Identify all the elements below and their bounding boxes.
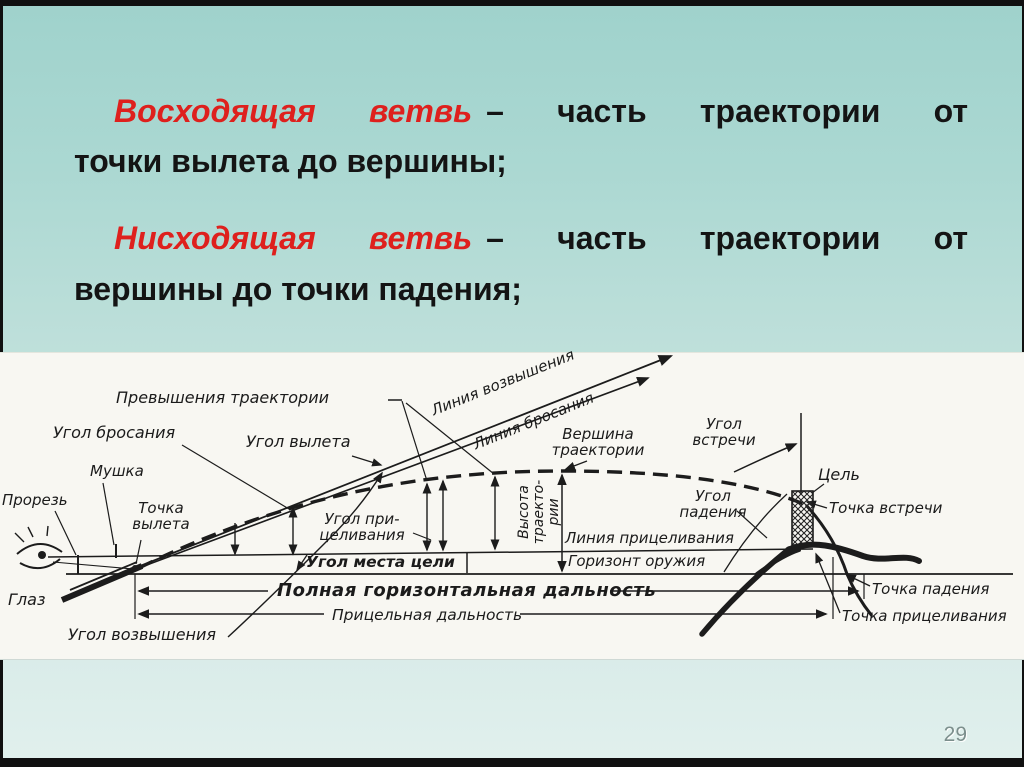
label-target-position-angle: Угол места цели: [306, 554, 455, 571]
label-throwing-angle: Угол бросания: [53, 424, 175, 441]
label-rear-sight-notch: Прорезь: [2, 492, 68, 508]
label-trajectory-apex: Вершина траектории: [540, 426, 656, 458]
presentation-slide: Восходящая ветвь– часть траектории от то…: [0, 0, 1024, 767]
label-trajectory-height: Высота траекто- рии: [517, 470, 562, 554]
label-elevation-angle: Угол возвышения: [68, 626, 216, 643]
label-aim-point: Точка прицеливания: [842, 608, 1007, 624]
definition-descending-rest: – часть траектории от: [486, 220, 968, 256]
definition-ascending: Восходящая ветвь– часть траектории от то…: [74, 86, 968, 186]
label-aiming-angle: Угол при- целивания: [311, 511, 413, 543]
slide-border-top: [0, 0, 1024, 6]
definition-ascending-line2: точки вылета до вершины;: [74, 136, 968, 186]
target-box: [792, 491, 813, 545]
sight-ray: [53, 562, 133, 569]
label-full-horizontal-range: Полная горизонтальная дальность: [277, 581, 656, 600]
label-target: Цель: [818, 466, 860, 483]
muzzle-point: [132, 565, 138, 571]
front-sight-leader: [103, 483, 114, 545]
term-ascending-branch: Восходящая ветвь: [114, 93, 472, 129]
slide-border-bottom: [0, 758, 1024, 767]
definition-descending: Нисходящая ветвь– часть траектории от ве…: [74, 213, 968, 313]
aiming-angle-leader: [413, 533, 431, 540]
label-departure-angle: Угол вылета: [246, 433, 351, 450]
weapon-barrel: [62, 566, 142, 600]
label-meeting-point: Точка встречи: [829, 500, 942, 516]
muzzle-point-leader: [136, 540, 141, 564]
definitions-block: Восходящая ветвь– часть траектории от то…: [74, 86, 968, 341]
definition-descending-line2: вершины до точки падения;: [74, 264, 968, 314]
label-superelevation: Превышения траектории: [116, 389, 329, 406]
label-meeting-angle: Угол встречи: [684, 416, 764, 448]
term-descending-branch: Нисходящая ветвь: [114, 220, 472, 256]
trajectory-tail: [806, 505, 872, 616]
departure-angle-leader: [352, 456, 381, 465]
label-muzzle-point: Точка вылета: [124, 500, 198, 532]
aim-point-leader: [816, 554, 840, 613]
label-front-sight: Мушка: [90, 463, 144, 479]
throwing-angle-leader: [182, 445, 289, 509]
label-weapon-horizon: Горизонт оружия: [568, 553, 705, 569]
eye-icon: [15, 526, 62, 568]
label-sighting-range: Прицельная дальность: [332, 607, 522, 624]
definition-ascending-rest: – часть траектории от: [486, 93, 968, 129]
label-fall-angle: Угол падения: [676, 488, 750, 520]
label-aiming-line: Линия прицеливания: [565, 530, 734, 546]
apex-leader: [566, 461, 587, 469]
label-eye: Глаз: [8, 591, 45, 608]
trajectory-diagram: Превышения траектории Угол бросания Угол…: [0, 352, 1024, 660]
label-fall-point: Точка падения: [872, 581, 989, 597]
page-number: 29: [944, 723, 967, 747]
